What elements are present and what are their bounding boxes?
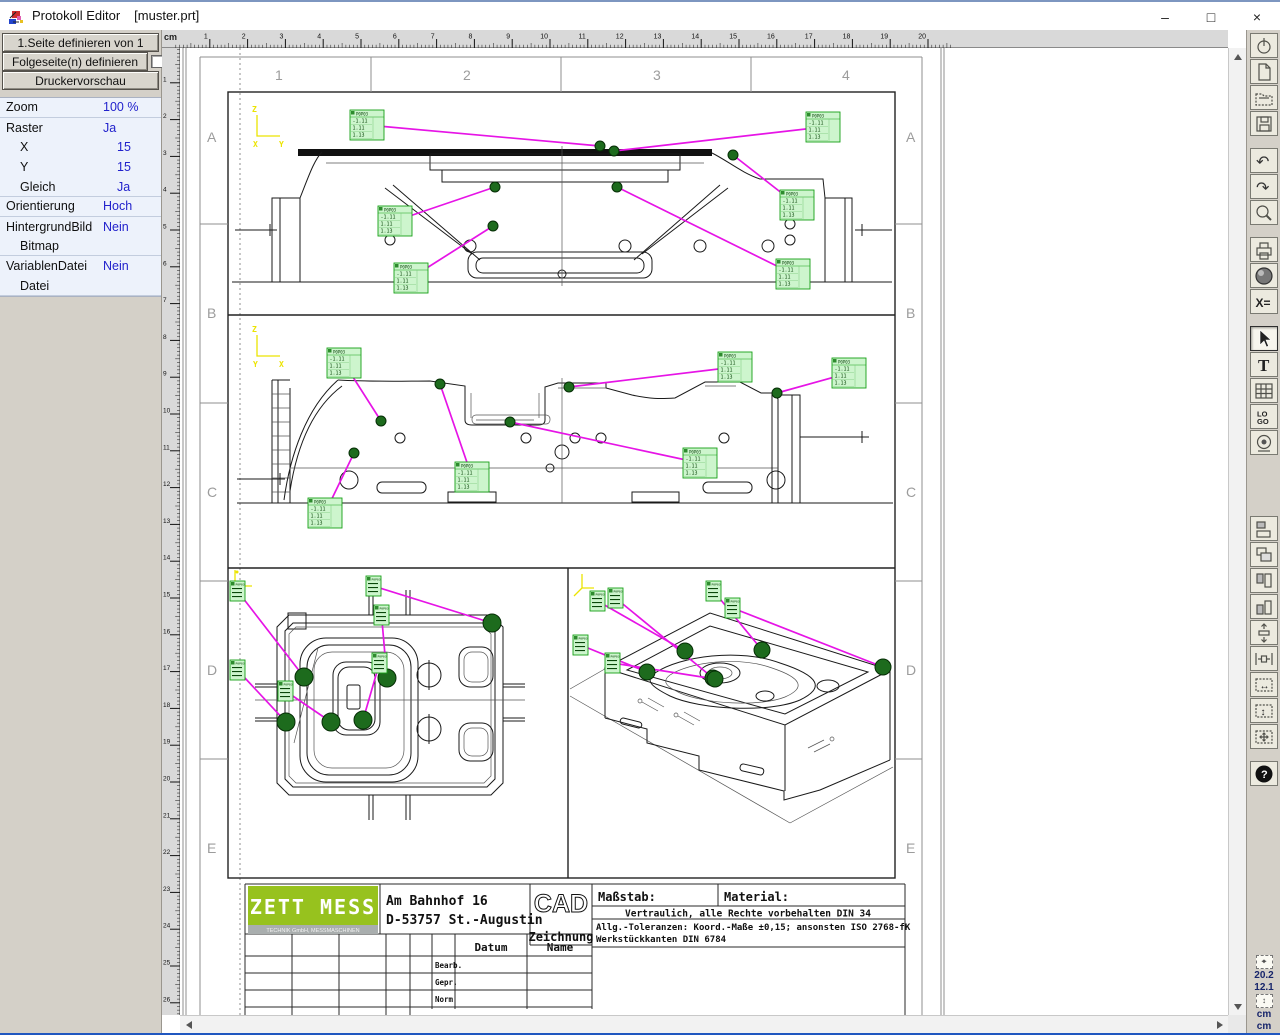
align-top-button[interactable] [1250, 568, 1278, 593]
svg-text:P0P03: P0P03 [724, 354, 737, 359]
logo-button[interactable]: LOGO [1250, 404, 1278, 429]
align-left-icon [1253, 518, 1275, 540]
svg-text:20: 20 [918, 34, 926, 41]
svg-text:-1.11: -1.11 [353, 119, 368, 125]
svg-text:P0P03: P0P03 [236, 583, 245, 587]
svg-text:P0P03: P0P03 [236, 662, 245, 666]
variables-icon: X= [1253, 291, 1275, 313]
svg-text:7: 7 [163, 297, 167, 304]
svg-text:1.13: 1.13 [397, 286, 409, 292]
svg-text:6: 6 [393, 34, 397, 41]
define-following-pages-button[interactable]: Folgeseite(n) definieren [2, 52, 148, 71]
open-folder-icon [1253, 87, 1275, 109]
svg-text:9: 9 [163, 371, 167, 378]
svg-text:18: 18 [163, 702, 171, 709]
svg-text:18: 18 [843, 34, 851, 41]
property-row-zoom[interactable]: Zoom100 % [0, 98, 161, 118]
tolerance-note: Allg.-Toleranzen: Koord.-Maße ±0,15; ans… [596, 923, 911, 933]
align-bottom-button[interactable] [1250, 594, 1278, 619]
svg-text:P0P03: P0P03 [782, 261, 795, 266]
svg-text:11: 11 [579, 34, 586, 41]
svg-text:17: 17 [805, 34, 813, 41]
stamp-icon [1253, 432, 1275, 454]
svg-text:GO: GO [1257, 417, 1269, 426]
ruler-unit-label: cm [164, 32, 177, 42]
svg-text:14: 14 [163, 555, 171, 562]
confidential-note: Vertraulich, alle Rechte vorbehalten DIN… [625, 909, 871, 920]
unit-y-label: cm [1257, 1021, 1271, 1032]
svg-text:P0P03: P0P03 [712, 583, 721, 587]
unit-x-label: cm [1257, 1009, 1271, 1020]
address-line1: Am Bahnhof 16 [386, 894, 488, 909]
svg-text:1.13: 1.13 [330, 371, 342, 377]
svg-text:2: 2 [163, 113, 167, 120]
size-horizontal-button[interactable]: ↔ [1250, 672, 1278, 697]
svg-text:1.11: 1.11 [686, 464, 698, 470]
undo-icon: ↶ [1253, 150, 1275, 172]
svg-text:P0P03: P0P03 [731, 600, 740, 604]
svg-text:P0P03: P0P03 [372, 578, 381, 582]
stamp-button[interactable] [1250, 430, 1278, 455]
svg-text:P0P03: P0P03 [786, 192, 799, 197]
annotations-view2[interactable]: P0P03-1.111.111.13P0P03-1.111.111.13P0P0… [308, 348, 866, 528]
cad-logo: CAD [534, 890, 588, 918]
company-subtitle: TECHNIK GmbH, MESSMASCHINEN [266, 928, 359, 934]
help-icon: ? [1253, 763, 1275, 785]
move-icon [1253, 726, 1275, 748]
name-header: Name [547, 941, 574, 954]
cursor-position-status: ⌖ 20.2 12.1 ↕ cm cm [1247, 955, 1280, 1032]
material-label: Material: [724, 890, 789, 904]
svg-text:8: 8 [468, 34, 472, 41]
date-header: Datum [474, 941, 507, 954]
align-left-button[interactable] [1250, 516, 1278, 541]
maximize-button[interactable]: □ [1188, 2, 1234, 32]
svg-text:1.13: 1.13 [353, 133, 365, 139]
new-document-icon [1253, 61, 1275, 83]
new-document-button[interactable] [1250, 59, 1278, 84]
protokoll-editor-window: Protokoll Editor[muster.prt] – □ × 1.Sei… [0, 0, 1280, 1035]
power-icon [1253, 35, 1275, 57]
scrollbar-corner [1228, 1015, 1246, 1033]
horizontal-scrollbar[interactable] [180, 1015, 1228, 1033]
svg-text:1: 1 [204, 34, 208, 41]
size-vertical-icon: ↕ [1253, 700, 1275, 722]
svg-text:1: 1 [163, 76, 167, 83]
axis-indicator: Z Y X [252, 325, 284, 369]
scale-label: Maßstab: [598, 890, 656, 904]
svg-text:16: 16 [767, 34, 775, 41]
svg-text:20: 20 [163, 776, 171, 783]
svg-text:-1.11: -1.11 [835, 367, 850, 373]
svg-text:Z: Z [252, 325, 257, 334]
minimize-button[interactable]: – [1142, 2, 1188, 32]
property-row-y[interactable]: Y15 [0, 157, 161, 177]
globe-icon [1253, 265, 1275, 287]
svg-text:1.11: 1.11 [397, 279, 409, 285]
svg-text:16: 16 [163, 628, 171, 635]
property-grid: Zoom100 %RasterJaX15Y15GleichJaOrientier… [0, 97, 161, 297]
property-row-bitmap[interactable]: Bitmap [0, 237, 161, 257]
print-button[interactable] [1250, 237, 1278, 262]
svg-text:1.11: 1.11 [779, 275, 791, 281]
svg-text:1.13: 1.13 [779, 282, 791, 288]
svg-text:3: 3 [653, 67, 661, 83]
svg-text:B: B [906, 305, 915, 321]
scroll-right-arrow[interactable] [1211, 1016, 1228, 1033]
svg-text:A: A [906, 129, 916, 145]
svg-text:1.11: 1.11 [353, 126, 365, 132]
select-arrow-button[interactable] [1250, 326, 1278, 351]
svg-text:4: 4 [842, 67, 850, 83]
property-row-gleich[interactable]: GleichJa [0, 177, 161, 197]
svg-text:1.11: 1.11 [721, 368, 733, 374]
svg-text:1.11: 1.11 [835, 374, 847, 380]
svg-text:1.11: 1.11 [809, 128, 821, 134]
open-folder-button[interactable] [1250, 85, 1278, 110]
svg-text:P0P03: P0P03 [333, 350, 346, 355]
svg-text:P0P03: P0P03 [378, 655, 387, 659]
svg-text:21: 21 [163, 812, 171, 819]
svg-text:14: 14 [691, 34, 699, 41]
svg-text:C: C [906, 484, 916, 500]
table-button[interactable] [1250, 378, 1278, 403]
svg-text:5: 5 [163, 224, 167, 231]
window-title: Protokoll Editor[muster.prt] [32, 8, 199, 23]
axis-indicator: Z X Y [252, 105, 284, 149]
svg-text:1.13: 1.13 [381, 229, 393, 235]
svg-text:P0P03: P0P03 [596, 593, 605, 597]
svg-text:1.11: 1.11 [330, 364, 342, 370]
svg-text:23: 23 [163, 886, 171, 893]
svg-text:17: 17 [163, 665, 171, 672]
svg-text:25: 25 [163, 960, 171, 967]
move-button[interactable] [1250, 724, 1278, 749]
document-name: [muster.prt] [134, 8, 199, 23]
svg-text:1.13: 1.13 [835, 381, 847, 387]
align-overlap-icon [1253, 544, 1275, 566]
distribute-horizontal-button[interactable] [1250, 646, 1278, 671]
close-button[interactable]: × [1234, 2, 1280, 32]
right-toolbar: ↶↷X=TLOGO↔↕? ⌖ 20.2 12.1 ↕ cm cm [1246, 30, 1280, 1035]
svg-text:15: 15 [163, 592, 171, 599]
svg-text:1.11: 1.11 [783, 206, 795, 212]
svg-text:4: 4 [163, 187, 167, 194]
svg-text:8: 8 [163, 334, 167, 341]
define-first-page-button[interactable]: 1.Seite definieren von 1 [2, 33, 159, 52]
svg-text:-1.11: -1.11 [779, 268, 794, 274]
company-name: ZETT MESS [250, 895, 376, 919]
vertical-scrollbar[interactable] [1228, 48, 1246, 1015]
vertical-ruler: 1234567891011121314151617181920212223242… [162, 48, 180, 1015]
svg-text:1.13: 1.13 [458, 485, 470, 491]
svg-text:P0P03: P0P03 [614, 590, 623, 594]
svg-text:-1.11: -1.11 [311, 507, 326, 513]
redo-icon: ↷ [1253, 176, 1275, 198]
svg-text:-1.11: -1.11 [809, 121, 824, 127]
svg-text:Z: Z [252, 105, 257, 114]
svg-text:1.13: 1.13 [686, 471, 698, 477]
svg-text:22: 22 [163, 849, 171, 856]
logo-icon: LOGO [1253, 406, 1275, 428]
svg-text:1: 1 [275, 67, 283, 83]
svg-text:Gepr.: Gepr. [435, 978, 458, 987]
svg-text:T: T [1258, 356, 1270, 375]
print-preview-button[interactable]: Druckervorschau [2, 71, 159, 90]
redo-button[interactable]: ↷ [1250, 174, 1278, 199]
distribute-vertical-icon [1253, 622, 1275, 644]
distribute-horizontal-icon [1253, 648, 1275, 670]
svg-text:1.13: 1.13 [783, 213, 795, 219]
svg-text:1.13: 1.13 [809, 135, 821, 141]
size-horizontal-icon: ↔ [1253, 674, 1275, 696]
svg-text:D: D [207, 662, 217, 678]
dimension-icon: ↕ [1256, 994, 1273, 1008]
svg-text:C: C [207, 484, 217, 500]
drawing-canvas[interactable]: 1 2 3 4 A B C D E A B C D E Z X [180, 48, 1228, 1015]
zoom-button[interactable] [1250, 200, 1278, 225]
svg-text:Bearb.: Bearb. [435, 961, 462, 970]
svg-text:P0P03: P0P03 [611, 655, 620, 659]
property-row-hintergrundbild[interactable]: HintergrundBildNein [0, 217, 161, 237]
text-tool-button[interactable]: T [1250, 352, 1278, 377]
address-line2: D-53757 St.-Augustin [386, 913, 543, 928]
svg-text:-1.11: -1.11 [783, 199, 798, 205]
svg-text:?: ? [1261, 769, 1268, 781]
svg-text:X: X [253, 140, 258, 149]
svg-text:P0P03: P0P03 [384, 208, 397, 213]
svg-text:P0P03: P0P03 [838, 360, 851, 365]
scroll-left-arrow[interactable] [180, 1016, 197, 1033]
property-row-datei[interactable]: Datei [0, 276, 161, 296]
svg-text:4: 4 [317, 34, 321, 41]
svg-text:Y: Y [279, 140, 284, 149]
cursor-x-value: 20.2 [1254, 970, 1273, 981]
svg-text:P0P03: P0P03 [284, 683, 293, 687]
svg-text:P0P03: P0P03 [812, 114, 825, 119]
app-icon [8, 9, 25, 26]
title-bar: Protokoll Editor[muster.prt] – □ × [0, 0, 1280, 30]
svg-text:↔: ↔ [1260, 681, 1270, 692]
svg-text:P0P03: P0P03 [314, 500, 327, 505]
title-block: ZETT MESS TECHNIK GmbH, MESSMASCHINEN Am… [245, 884, 911, 1015]
svg-text:1.11: 1.11 [458, 478, 470, 484]
svg-text:19: 19 [163, 739, 171, 746]
svg-text:12: 12 [163, 481, 171, 488]
svg-text:Y: Y [253, 360, 258, 369]
page-frame: 1 2 3 4 A B C D E A B C D E [183, 48, 944, 1015]
svg-text:10: 10 [540, 34, 548, 41]
svg-text:D: D [906, 662, 916, 678]
svg-text:Norm: Norm [435, 995, 454, 1004]
svg-text:26: 26 [163, 996, 171, 1003]
svg-text:2: 2 [463, 67, 471, 83]
svg-text:P0P03: P0P03 [579, 637, 588, 641]
save-icon [1253, 113, 1275, 135]
svg-text:X: X [279, 360, 284, 369]
svg-text:P0P03: P0P03 [461, 464, 474, 469]
horizontal-ruler: 1234567891011121314151617181920 cm [162, 30, 1228, 48]
svg-text:↷: ↷ [1256, 180, 1270, 197]
svg-text:15: 15 [729, 34, 737, 41]
align-overlap-button[interactable] [1250, 542, 1278, 567]
property-row-orientierung[interactable]: OrientierungHoch [0, 197, 161, 217]
left-panel: 1.Seite definieren von 1 Folgeseite(n) d… [0, 30, 162, 1035]
svg-text:↶: ↶ [1256, 154, 1269, 171]
svg-text:P0P03: P0P03 [400, 265, 413, 270]
svg-text:P0P03: P0P03 [689, 450, 702, 455]
svg-text:13: 13 [654, 34, 662, 41]
globe-button[interactable] [1250, 263, 1278, 288]
svg-text:9: 9 [506, 34, 510, 41]
svg-text:-1.11: -1.11 [381, 215, 396, 221]
table-icon [1253, 380, 1275, 402]
scroll-up-arrow[interactable] [1229, 48, 1246, 65]
annotations-view1[interactable]: P0P03-1.111.111.13P0P03-1.111.111.13P0P0… [350, 110, 840, 293]
svg-text:X=: X= [1256, 296, 1271, 310]
svg-text:1.11: 1.11 [381, 222, 393, 228]
zoom-icon [1253, 202, 1275, 224]
svg-text:A: A [207, 129, 217, 145]
svg-text:13: 13 [163, 518, 171, 525]
app-title: Protokoll Editor [32, 8, 120, 23]
svg-text:5: 5 [355, 34, 359, 41]
svg-text:2: 2 [242, 34, 246, 41]
svg-text:-1.11: -1.11 [686, 457, 701, 463]
svg-text:B: B [207, 305, 216, 321]
svg-text:P0P03: P0P03 [356, 112, 369, 117]
size-vertical-button[interactable]: ↕ [1250, 698, 1278, 723]
save-button[interactable] [1250, 111, 1278, 136]
distribute-vertical-button[interactable] [1250, 620, 1278, 645]
svg-text:1.13: 1.13 [721, 375, 733, 381]
align-top-icon [1253, 570, 1275, 592]
power-button[interactable] [1250, 33, 1278, 58]
svg-text:-1.11: -1.11 [397, 272, 412, 278]
svg-text:3: 3 [163, 150, 167, 157]
svg-text:-1.11: -1.11 [721, 361, 736, 367]
svg-text:1.11: 1.11 [311, 514, 323, 520]
select-arrow-icon [1253, 328, 1275, 350]
svg-text:1.13: 1.13 [311, 521, 323, 527]
help-button[interactable]: ? [1250, 761, 1278, 786]
svg-text:24: 24 [163, 923, 171, 930]
text-tool-icon: T [1253, 354, 1275, 376]
svg-text:11: 11 [163, 444, 170, 451]
selection-extent-icon: ⌖ [1256, 955, 1273, 969]
svg-text:E: E [207, 840, 216, 856]
scroll-down-arrow[interactable] [1229, 998, 1246, 1015]
undo-button[interactable]: ↶ [1250, 148, 1278, 173]
svg-text:↕: ↕ [1261, 707, 1266, 718]
svg-text:-1.11: -1.11 [458, 471, 473, 477]
property-row-raster[interactable]: RasterJa [0, 118, 161, 138]
annotations-view4[interactable]: P0P03P0P03P0P03P0P03P0P03P0P03 [573, 581, 891, 687]
property-row-variablendatei[interactable]: VariablenDateiNein [0, 256, 161, 276]
property-row-x[interactable]: X15 [0, 138, 161, 158]
svg-text:3: 3 [279, 34, 283, 41]
cursor-y-value: 12.1 [1254, 982, 1273, 993]
variables-button[interactable]: X= [1250, 289, 1278, 314]
svg-text:10: 10 [163, 408, 171, 415]
svg-text:E: E [906, 840, 915, 856]
svg-text:P0P03: P0P03 [380, 607, 389, 611]
svg-text:-1.11: -1.11 [330, 357, 345, 363]
print-icon [1253, 239, 1275, 261]
svg-text:12: 12 [616, 34, 624, 41]
align-bottom-icon [1253, 596, 1275, 618]
svg-text:7: 7 [431, 34, 435, 41]
svg-text:6: 6 [163, 260, 167, 267]
edges-note: Werkstückkanten DIN 6784 [596, 935, 727, 945]
svg-text:19: 19 [880, 34, 888, 41]
